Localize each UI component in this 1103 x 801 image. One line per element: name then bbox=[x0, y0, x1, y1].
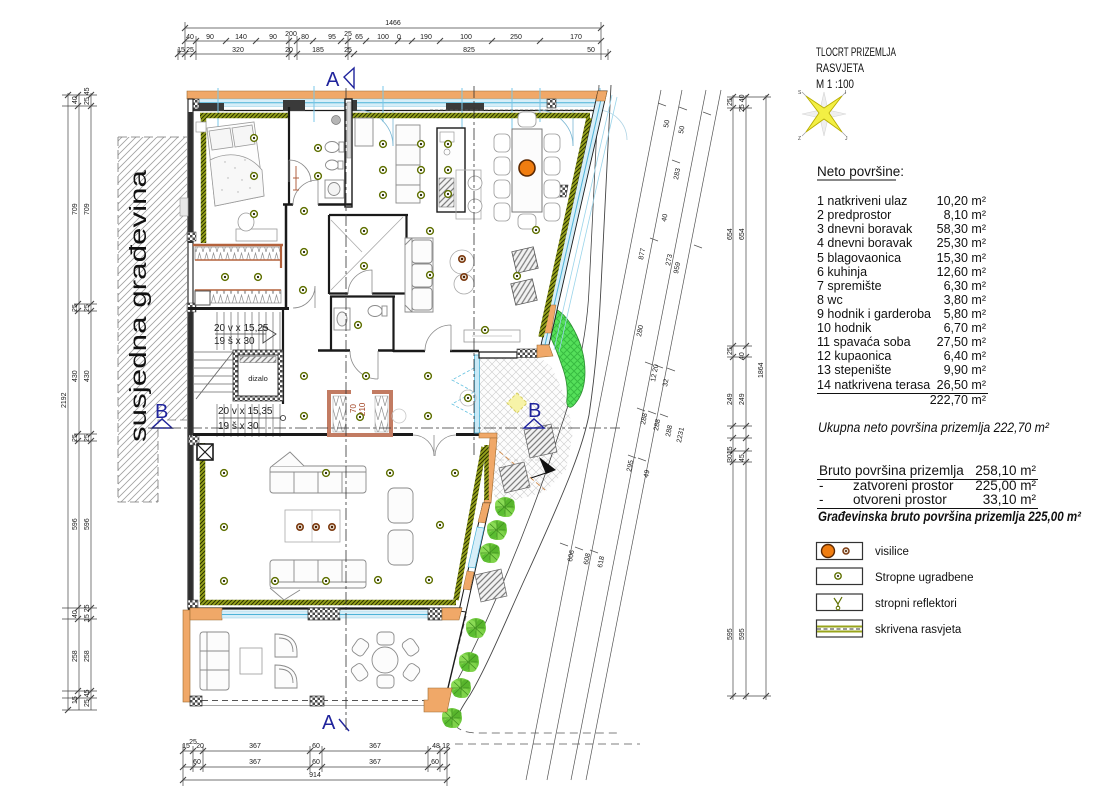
svg-text:258: 258 bbox=[72, 650, 79, 662]
svg-text:48: 48 bbox=[432, 743, 440, 750]
svg-text:8,10 m²: 8,10 m² bbox=[944, 208, 986, 222]
svg-text:25: 25 bbox=[84, 434, 91, 442]
svg-text:10 hodnik: 10 hodnik bbox=[817, 321, 872, 335]
svg-text:6,40 m²: 6,40 m² bbox=[944, 349, 986, 363]
svg-text:654: 654 bbox=[739, 228, 746, 240]
svg-text:8 wc: 8 wc bbox=[817, 293, 843, 307]
svg-text:4 dnevni boravak: 4 dnevni boravak bbox=[817, 236, 913, 250]
svg-text:25 40: 25 40 bbox=[739, 94, 746, 112]
svg-text:A: A bbox=[322, 712, 336, 734]
svg-text:225,00 m²: 225,00 m² bbox=[975, 478, 1036, 493]
svg-text:25: 25 bbox=[344, 31, 352, 38]
svg-text:58,30 m²: 58,30 m² bbox=[937, 222, 986, 236]
svg-text:Z: Z bbox=[798, 136, 801, 142]
svg-text:15: 15 bbox=[72, 696, 79, 704]
svg-text:6,30 m²: 6,30 m² bbox=[944, 279, 986, 293]
svg-text:654: 654 bbox=[727, 228, 734, 240]
svg-text:50: 50 bbox=[678, 125, 686, 134]
svg-text:Bruto površina prizemlja: Bruto površina prizemlja bbox=[819, 463, 964, 478]
svg-text:A: A bbox=[326, 69, 340, 91]
svg-text:Građevinska bruto površina pri: Građevinska bruto površina prizemlja 225… bbox=[818, 509, 1081, 524]
svg-text:27,50 m²: 27,50 m² bbox=[937, 335, 986, 349]
svg-text:95: 95 bbox=[328, 34, 336, 41]
svg-text:90: 90 bbox=[206, 34, 214, 41]
svg-text:40: 40 bbox=[661, 213, 669, 222]
svg-text:RASVJETA: RASVJETA bbox=[816, 61, 864, 75]
svg-text:33,10 m²: 33,10 m² bbox=[983, 492, 1037, 507]
svg-text:3015: 3015 bbox=[727, 446, 734, 462]
svg-text:Ukupna neto površina prizemlj: Ukupna neto površina prizemlja 222,70 m² bbox=[818, 420, 1049, 435]
svg-text:50: 50 bbox=[587, 47, 595, 54]
svg-text:11 spavaća soba: 11 spavaća soba bbox=[817, 335, 911, 349]
svg-text:12,60 m²: 12,60 m² bbox=[937, 265, 986, 279]
svg-text:596: 596 bbox=[72, 518, 79, 530]
svg-text:20 v x 15,35: 20 v x 15,35 bbox=[218, 406, 273, 417]
svg-text:250: 250 bbox=[510, 34, 522, 41]
svg-text:90: 90 bbox=[269, 34, 277, 41]
svg-text:25,30 m²: 25,30 m² bbox=[937, 236, 986, 250]
svg-text:2 predprostor: 2 predprostor bbox=[817, 208, 891, 222]
svg-text:10,20 m²: 10,20 m² bbox=[937, 194, 986, 208]
svg-text:7 spremište: 7 spremište bbox=[817, 279, 882, 293]
svg-text:6,70 m²: 6,70 m² bbox=[944, 321, 986, 335]
svg-text:1 natkriveni ulaz: 1 natkriveni ulaz bbox=[817, 194, 907, 208]
svg-text:M 1 :100: M 1 :100 bbox=[816, 77, 854, 91]
svg-text:-: - bbox=[819, 492, 824, 507]
svg-text:3 dnevni boravak: 3 dnevni boravak bbox=[817, 222, 913, 236]
svg-text:367: 367 bbox=[369, 743, 381, 750]
svg-text:60: 60 bbox=[431, 759, 439, 766]
svg-text:20: 20 bbox=[196, 743, 204, 750]
svg-text:709: 709 bbox=[84, 203, 91, 215]
svg-text:367: 367 bbox=[369, 759, 381, 766]
svg-text:15 25: 15 25 bbox=[84, 604, 91, 622]
svg-text:TLOCRT PRIZEMLJA: TLOCRT PRIZEMLJA bbox=[816, 45, 896, 59]
svg-text:skrivena rasvjeta: skrivena rasvjeta bbox=[875, 624, 962, 636]
svg-text:25: 25 bbox=[727, 347, 734, 355]
svg-text:20: 20 bbox=[285, 47, 293, 54]
svg-text:60: 60 bbox=[312, 759, 320, 766]
svg-text:100: 100 bbox=[460, 34, 472, 41]
svg-text:45: 45 bbox=[739, 454, 746, 462]
svg-text:20 v x 15,25: 20 v x 15,25 bbox=[214, 323, 269, 334]
svg-text:12: 12 bbox=[442, 743, 450, 750]
svg-text:-: - bbox=[819, 478, 824, 493]
svg-text:1864: 1864 bbox=[758, 362, 765, 378]
svg-text:26,50 m²: 26,50 m² bbox=[937, 378, 986, 392]
svg-text:25: 25 bbox=[84, 304, 91, 312]
svg-text:49: 49 bbox=[643, 469, 651, 478]
svg-text:2192: 2192 bbox=[61, 392, 68, 408]
svg-text:Neto površine:: Neto površine: bbox=[817, 164, 904, 179]
svg-text:367: 367 bbox=[249, 743, 261, 750]
svg-text:32: 32 bbox=[662, 378, 670, 387]
svg-text:249: 249 bbox=[739, 393, 746, 405]
svg-text:25 45: 25 45 bbox=[84, 87, 91, 105]
svg-text:50: 50 bbox=[663, 119, 671, 128]
svg-text:25: 25 bbox=[186, 47, 194, 54]
svg-text:13 stepenište: 13 stepenište bbox=[817, 363, 891, 377]
svg-text:stropni reflektori: stropni reflektori bbox=[875, 598, 957, 610]
svg-text:15: 15 bbox=[177, 47, 185, 54]
svg-text:25: 25 bbox=[344, 47, 352, 54]
svg-text:430: 430 bbox=[84, 370, 91, 382]
svg-text:65: 65 bbox=[355, 34, 363, 41]
svg-text:otvoreni prostor: otvoreni prostor bbox=[853, 492, 947, 507]
svg-text:25: 25 bbox=[727, 98, 734, 106]
svg-text:0: 0 bbox=[397, 34, 401, 41]
svg-text:170: 170 bbox=[570, 34, 582, 41]
svg-text:3,80 m²: 3,80 m² bbox=[944, 293, 986, 307]
svg-text:zatvoreni prostor: zatvoreni prostor bbox=[853, 478, 954, 493]
svg-text:Stropne ugradbene: Stropne ugradbene bbox=[875, 572, 973, 584]
svg-text:15,30 m²: 15,30 m² bbox=[937, 251, 986, 265]
svg-text:100: 100 bbox=[377, 34, 389, 41]
svg-text:80: 80 bbox=[301, 34, 309, 41]
svg-text:70: 70 bbox=[349, 404, 358, 413]
svg-text:25: 25 bbox=[72, 434, 79, 442]
svg-text:140: 140 bbox=[235, 34, 247, 41]
svg-text:14 natkrivena terasa: 14 natkrivena terasa bbox=[817, 378, 930, 392]
svg-text:595: 595 bbox=[727, 628, 734, 640]
svg-text:12 kupaonica: 12 kupaonica bbox=[817, 349, 891, 363]
svg-text:596: 596 bbox=[84, 518, 91, 530]
svg-text:1466: 1466 bbox=[385, 20, 401, 27]
svg-text:19 š x 30: 19 š x 30 bbox=[214, 336, 255, 347]
svg-text:6 kuhinja: 6 kuhinja bbox=[817, 265, 867, 279]
svg-text:825: 825 bbox=[463, 47, 475, 54]
svg-text:367: 367 bbox=[249, 759, 261, 766]
svg-text:320: 320 bbox=[232, 47, 244, 54]
svg-text:susjedna građevina: susjedna građevina bbox=[125, 170, 151, 442]
svg-text:200: 200 bbox=[285, 31, 297, 38]
svg-text:5 blagovaonica: 5 blagovaonica bbox=[817, 251, 901, 265]
svg-text:9 hodnik i garderoba: 9 hodnik i garderoba bbox=[817, 307, 931, 321]
svg-text:visilice: visilice bbox=[875, 546, 909, 558]
svg-text:dizalo: dizalo bbox=[248, 374, 268, 383]
svg-text:19 š x 30: 19 š x 30 bbox=[218, 421, 259, 432]
svg-text:9,90 m²: 9,90 m² bbox=[944, 363, 986, 377]
svg-text:258: 258 bbox=[84, 650, 91, 662]
svg-text:25 45: 25 45 bbox=[84, 689, 91, 707]
svg-text:40: 40 bbox=[186, 34, 194, 41]
svg-text:190: 190 bbox=[420, 34, 432, 41]
svg-text:40: 40 bbox=[72, 610, 79, 618]
svg-text:709: 709 bbox=[72, 203, 79, 215]
svg-text:185: 185 bbox=[312, 47, 324, 54]
svg-text:40: 40 bbox=[72, 96, 79, 104]
svg-text:60: 60 bbox=[193, 759, 201, 766]
svg-text:914: 914 bbox=[309, 772, 321, 779]
svg-text:595: 595 bbox=[739, 628, 746, 640]
svg-text:40: 40 bbox=[739, 352, 746, 360]
svg-text:60: 60 bbox=[312, 743, 320, 750]
svg-text:222,70 m²: 222,70 m² bbox=[930, 393, 986, 407]
svg-text:25: 25 bbox=[72, 304, 79, 312]
svg-text:5,80 m²: 5,80 m² bbox=[944, 307, 986, 321]
svg-text:430: 430 bbox=[72, 370, 79, 382]
svg-text:249: 249 bbox=[727, 393, 734, 405]
svg-text:I: I bbox=[845, 90, 846, 96]
svg-text:258,10 m²: 258,10 m² bbox=[975, 463, 1036, 478]
